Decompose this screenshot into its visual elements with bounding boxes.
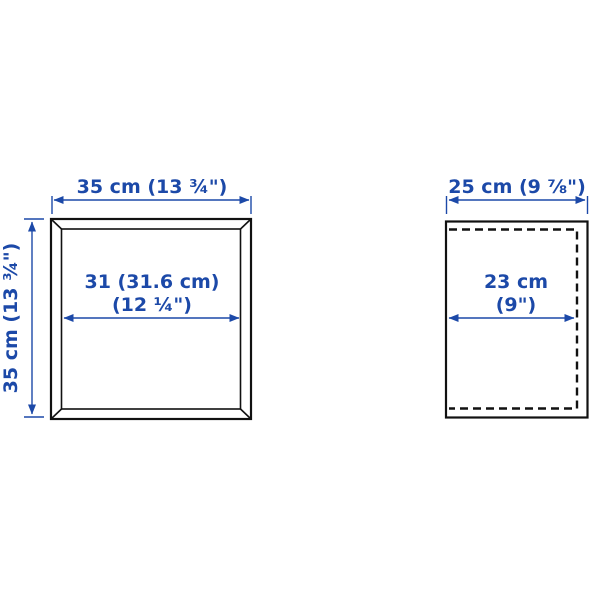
side-view-figure: 25 cm (9 ⅞") 23 cm (9") bbox=[446, 176, 588, 418]
dimension-diagram: 35 cm (13 ¾") 35 cm (13 ¾") 31 (31.6 cm)… bbox=[0, 0, 600, 600]
front-view-figure: 35 cm (13 ¾") 35 cm (13 ¾") 31 (31.6 cm)… bbox=[0, 176, 251, 419]
front-inner-width-label-line1: 31 (31.6 cm) bbox=[85, 271, 220, 293]
front-outer-rect bbox=[51, 219, 251, 419]
side-inner-depth-label-line1: 23 cm bbox=[484, 271, 548, 293]
side-inner-depth-label-line2: (9") bbox=[496, 294, 537, 316]
side-depth-label: 25 cm (9 ⅞") bbox=[448, 176, 586, 198]
front-width-label: 35 cm (13 ¾") bbox=[77, 176, 228, 198]
front-height-label: 35 cm (13 ¾") bbox=[0, 243, 22, 394]
side-outer-rect bbox=[446, 222, 588, 418]
front-inner-width-label-line2: (12 ¼") bbox=[112, 294, 192, 316]
